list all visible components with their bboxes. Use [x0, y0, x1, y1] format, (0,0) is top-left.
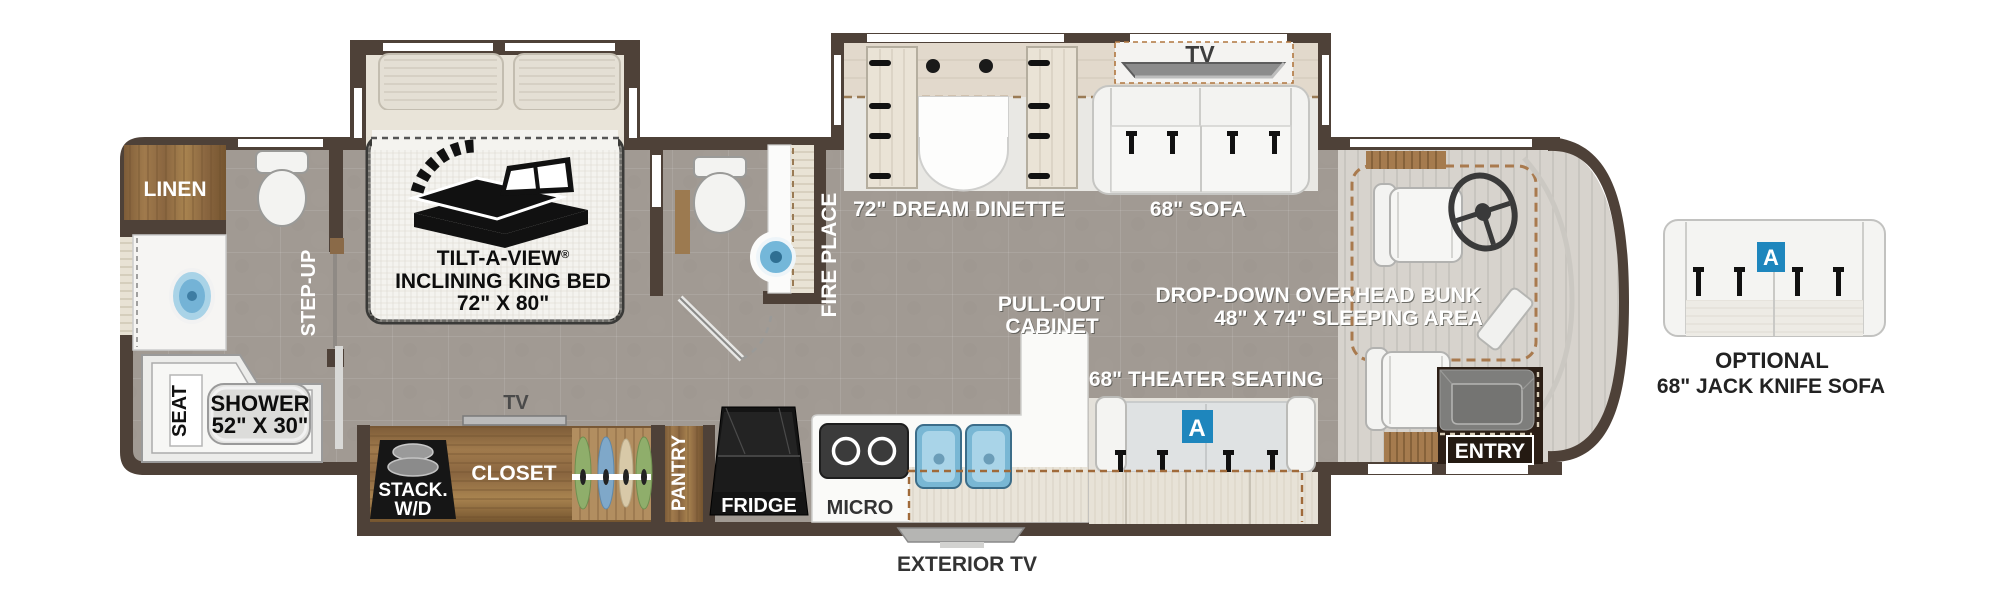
svg-text:A: A [1763, 245, 1779, 270]
svg-text:TILT-A-VIEW®: TILT-A-VIEW® [437, 247, 570, 270]
svg-text:48" X 74" SLEEPING AREA: 48" X 74" SLEEPING AREA [1214, 307, 1483, 330]
svg-text:68" JACK KNIFE SOFA: 68" JACK KNIFE SOFA [1657, 375, 1885, 398]
svg-text:FIRE PLACE: FIRE PLACE [818, 193, 841, 318]
svg-text:STACK.: STACK. [378, 480, 447, 501]
svg-text:TV: TV [503, 392, 529, 414]
svg-text:PULL-OUT: PULL-OUT [998, 293, 1104, 316]
svg-text:ENTRY: ENTRY [1455, 440, 1525, 463]
svg-text:CLOSET: CLOSET [471, 462, 556, 485]
svg-text:52" X 30": 52" X 30" [212, 413, 309, 438]
svg-text:68" SOFA: 68" SOFA [1150, 198, 1246, 221]
svg-text:OPTIONAL: OPTIONAL [1715, 348, 1829, 373]
svg-text:DROP-DOWN OVERHEAD BUNK: DROP-DOWN OVERHEAD BUNK [1156, 284, 1482, 307]
svg-text:STEP-UP: STEP-UP [298, 250, 320, 337]
svg-text:MICRO: MICRO [827, 497, 894, 519]
svg-text:LINEN: LINEN [144, 178, 207, 201]
svg-text:SEAT: SEAT [169, 385, 191, 437]
svg-text:A: A [1188, 415, 1205, 442]
svg-text:68" THEATER SEATING: 68" THEATER SEATING [1089, 368, 1323, 391]
svg-text:CABINET: CABINET [1005, 315, 1099, 338]
svg-text:PANTRY: PANTRY [669, 435, 690, 511]
svg-text:W/D: W/D [395, 499, 432, 520]
svg-text:EXTERIOR TV: EXTERIOR TV [897, 553, 1037, 576]
svg-text:72" DREAM DINETTE: 72" DREAM DINETTE [853, 198, 1065, 221]
svg-text:72" X 80": 72" X 80" [457, 292, 549, 315]
svg-text:FRIDGE: FRIDGE [721, 495, 797, 517]
svg-text:INCLINING KING BED: INCLINING KING BED [395, 270, 611, 293]
